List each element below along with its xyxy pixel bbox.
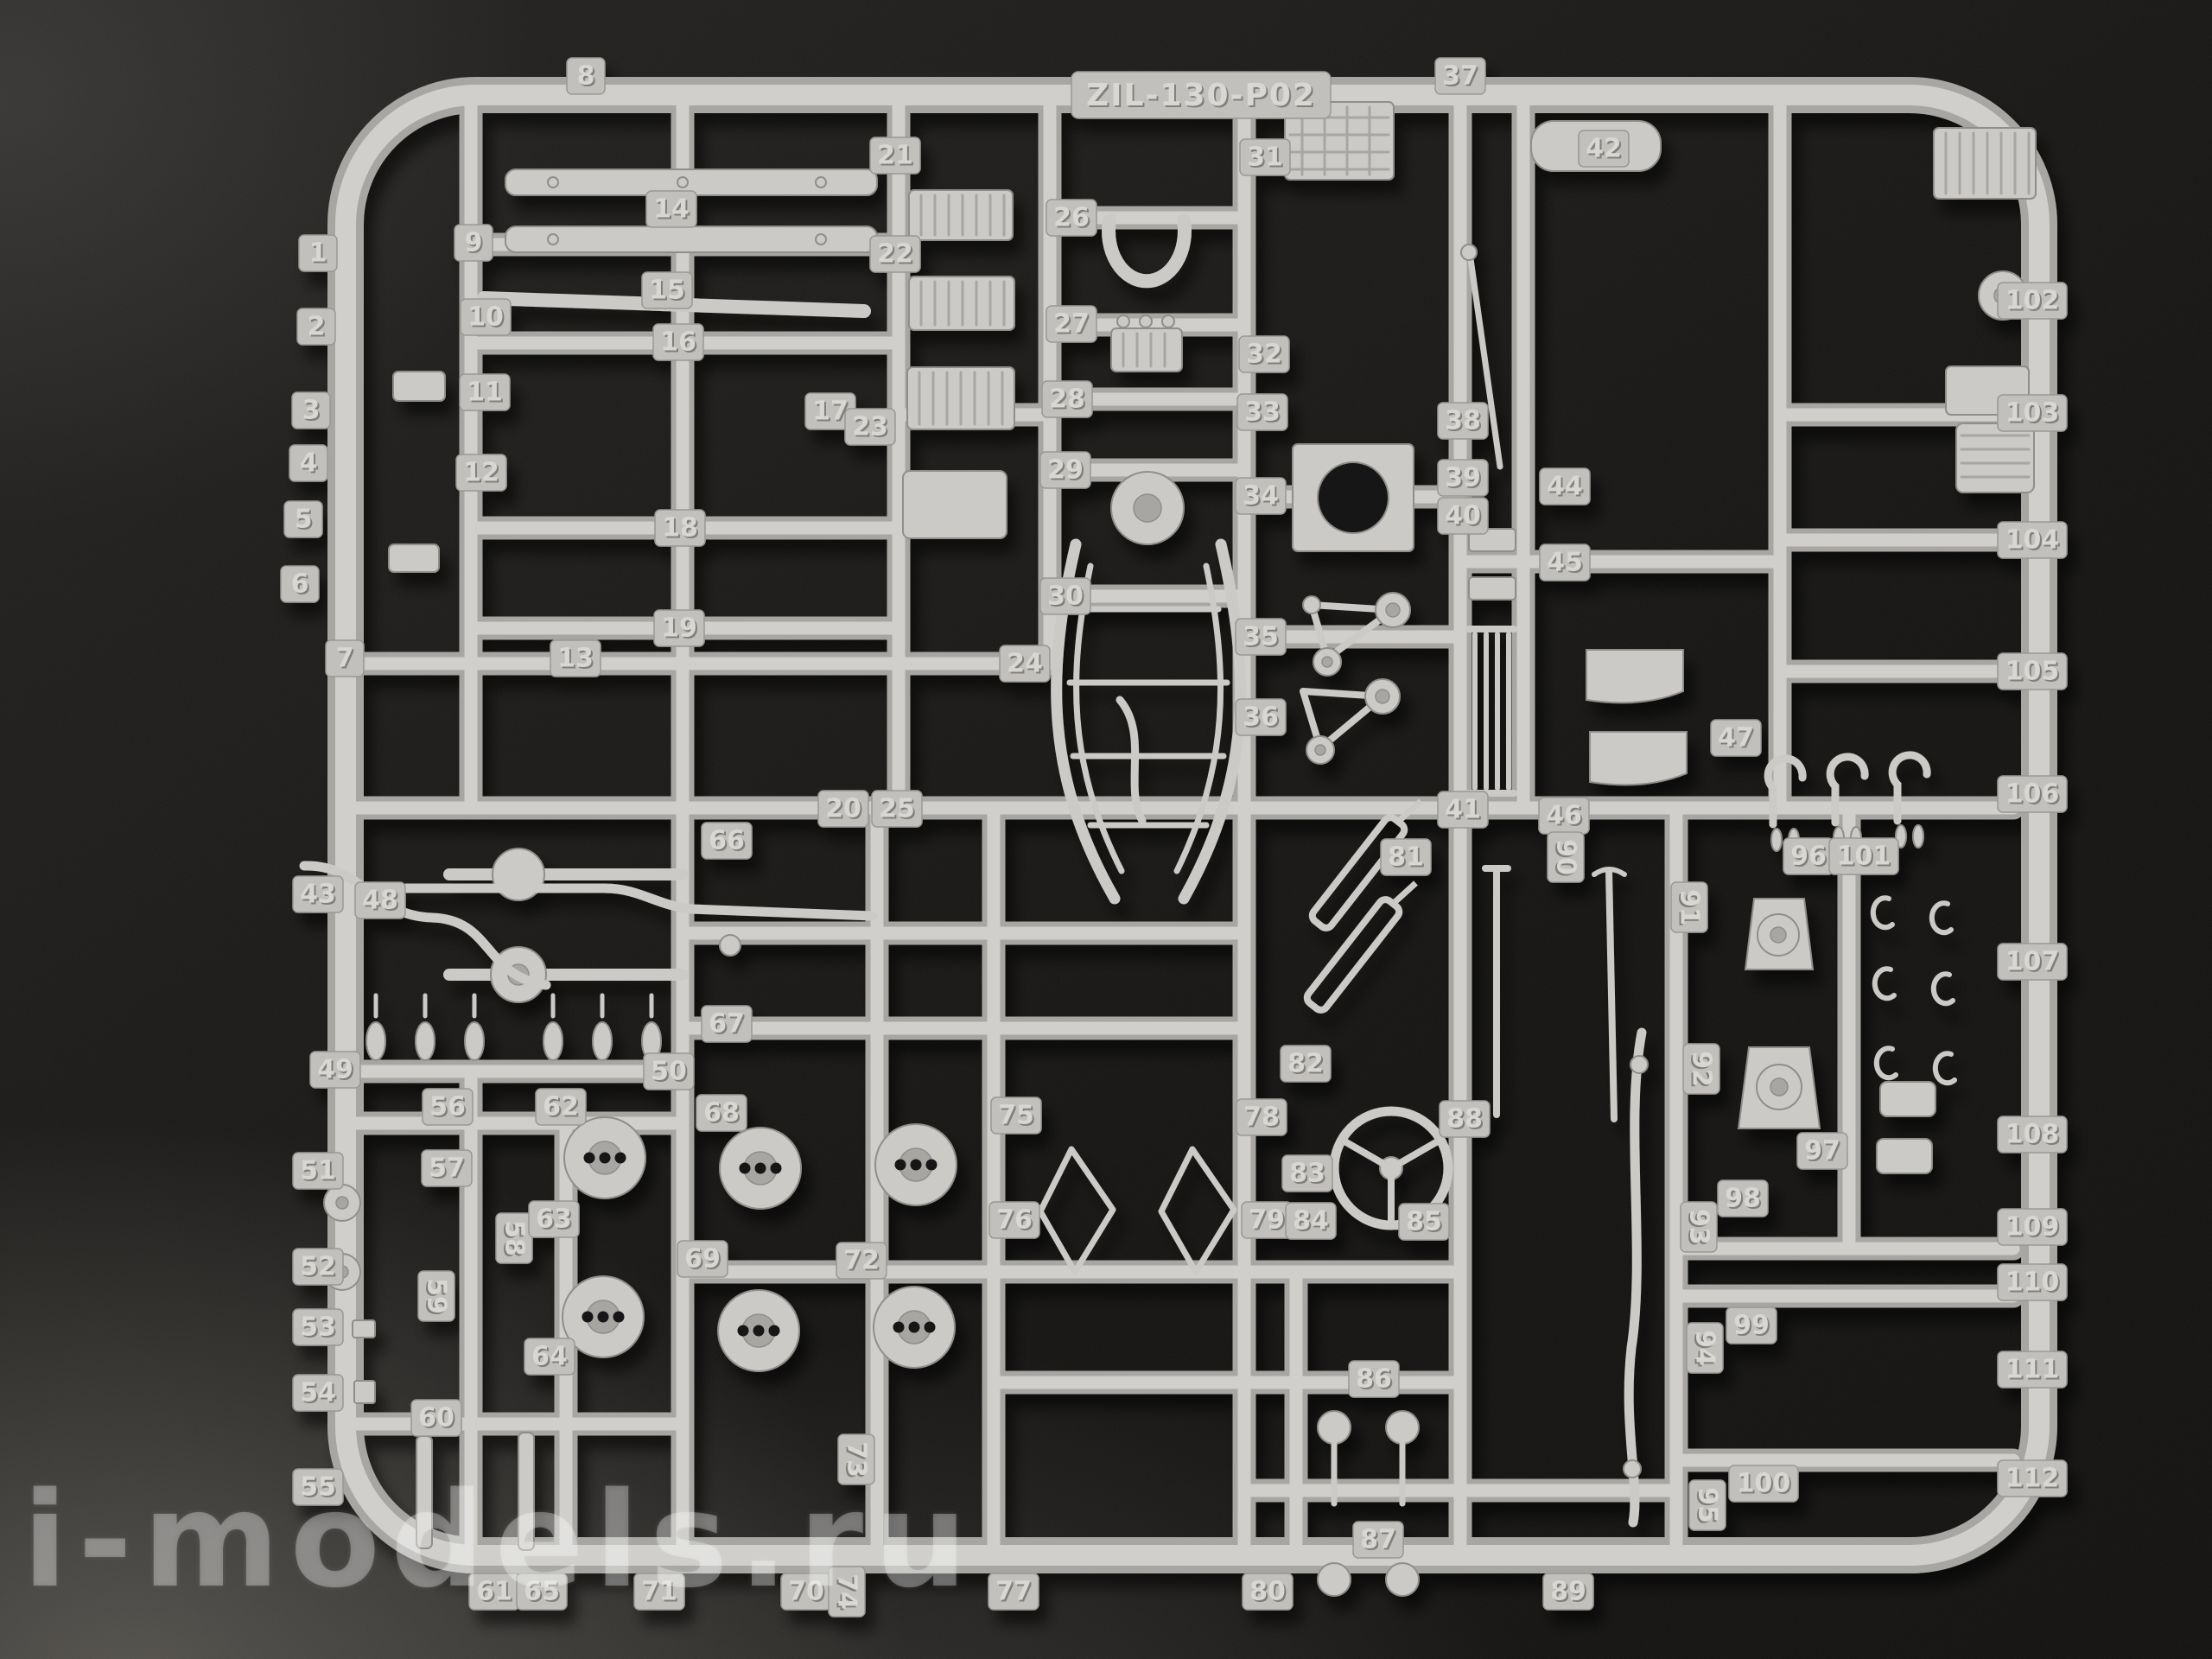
svg-text:63: 63 [536,1205,572,1235]
part-number-tab: 2121 [870,137,920,174]
svg-text:77: 77 [995,1577,1032,1607]
svg-text:98: 98 [1725,1184,1761,1214]
svg-text:58: 58 [499,1220,530,1256]
part-number-tab: 2828 [1042,381,1092,417]
part-number-tab: 4848 [355,882,405,918]
part-number-tab: 3939 [1438,460,1488,496]
part-number-tab: 22 [297,308,335,345]
part-number-tab: 7070 [781,1573,831,1610]
svg-text:17: 17 [812,397,849,427]
svg-text:14: 14 [653,194,690,225]
part-number-tab: 107107 [1998,944,2067,980]
svg-text:69: 69 [684,1244,721,1274]
svg-text:25: 25 [879,794,915,824]
part-number-tab: 8484 [1286,1203,1336,1239]
part-number-tab: 1616 [653,324,703,360]
svg-text:102: 102 [2005,286,2060,316]
part-number-tab: 5656 [423,1089,473,1125]
svg-text:49: 49 [317,1055,353,1085]
svg-text:4: 4 [300,448,318,479]
photo-of-model-kit-sprue: 1122334455667788991010111112121313141415… [0,0,2212,1659]
part-number-tab: 108108 [1998,1116,2067,1153]
part-number-tab: 6464 [524,1338,575,1375]
part-number-tab: 5252 [293,1249,343,1285]
part-number-tab: 6767 [702,1006,752,1042]
svg-text:10: 10 [467,302,504,333]
svg-text:96: 96 [1790,842,1827,872]
part-number-tab: 6161 [469,1573,519,1610]
part-number-tab: 8787 [1353,1522,1403,1558]
part-number-tab: 2525 [872,791,922,827]
svg-text:108: 108 [2005,1120,2060,1150]
part-number-tab: 2323 [845,409,895,445]
part-number-tab: 106106 [1998,776,2067,812]
part-number-tab: 6868 [696,1095,747,1131]
svg-text:94: 94 [1690,1330,1720,1366]
svg-text:1: 1 [309,238,327,269]
part-number-tab: 6565 [517,1573,567,1610]
part-number-tab: 7474 [829,1567,865,1617]
svg-text:80: 80 [1249,1577,1286,1607]
sprue-photo: 1122334455667788991010111112121313141415… [0,0,2212,1659]
svg-text:62: 62 [543,1092,579,1122]
svg-text:35: 35 [1243,622,1279,652]
part-number-tab: 104104 [1998,522,2067,558]
part-number-tab: 4141 [1438,791,1488,828]
part-number-tab: 4242 [1579,130,1629,167]
part-number-tab: 7979 [1242,1202,1292,1238]
part-number-tab: 5353 [293,1309,343,1345]
svg-text:6: 6 [291,569,309,600]
part-number-tab: 9797 [1797,1133,1847,1169]
svg-text:53: 53 [300,1313,336,1343]
part-number-tab: 3434 [1236,478,1286,514]
part-number-tab: 7676 [989,1202,1039,1238]
svg-text:30: 30 [1047,582,1084,612]
svg-text:83: 83 [1289,1159,1325,1189]
part-number-tab: 2626 [1046,200,1096,236]
svg-text:2: 2 [308,312,326,342]
svg-text:110: 110 [2005,1268,2060,1298]
part-number-tab: 5959 [418,1271,454,1321]
svg-text:70: 70 [788,1577,824,1607]
svg-text:82: 82 [1287,1049,1324,1079]
svg-text:104: 104 [2005,525,2060,556]
part-number-tab: 109109 [1998,1209,2067,1245]
part-number-tab: 1414 [646,191,696,227]
svg-text:111: 111 [2005,1355,2060,1385]
svg-text:72: 72 [843,1246,880,1276]
part-number-tab: 6969 [677,1241,728,1277]
svg-text:109: 109 [2005,1212,2060,1243]
part-number-tab: 1515 [642,272,692,308]
part-number-tab: 7272 [836,1243,887,1279]
part-number-tab: 100100 [1729,1465,1798,1502]
part-number-tab: 6262 [536,1089,586,1125]
part-number-tab: 3030 [1040,578,1090,614]
part-number-tab: 9595 [1689,1480,1726,1530]
svg-text:91: 91 [1675,889,1705,925]
part-number-tab: 5555 [293,1469,343,1505]
part-number-tab: 33 [292,392,330,429]
part-number-tab: 9696 [1783,838,1834,874]
part-number-tab: 1919 [654,610,704,646]
svg-text:73: 73 [842,1441,872,1478]
svg-text:45: 45 [1547,548,1583,578]
part-number-tab: 9494 [1687,1323,1723,1373]
part-number-tab: 4747 [1711,720,1761,756]
svg-text:88: 88 [1446,1104,1483,1135]
part-number-tab: 7575 [991,1097,1041,1134]
part-number-tab: 8585 [1399,1204,1449,1240]
svg-text:55: 55 [300,1472,336,1503]
svg-text:99: 99 [1733,1311,1770,1341]
svg-text:61: 61 [476,1577,512,1607]
svg-text:40: 40 [1445,501,1481,531]
svg-text:106: 106 [2005,779,2060,810]
part-number-tab: 8383 [1282,1155,1332,1192]
part-number-tab: 7373 [838,1434,874,1484]
part-number-tab: 4545 [1540,544,1590,581]
sprue-mold-label: ZIL-130-P02ZIL-130-P02 [1071,72,1331,118]
svg-text:3: 3 [302,396,321,426]
svg-text:101: 101 [1837,842,1891,872]
svg-text:95: 95 [1693,1487,1723,1523]
part-number-tab: 5454 [293,1375,343,1411]
svg-text:18: 18 [662,513,698,543]
part-number-tab: 8080 [1243,1573,1293,1610]
part-number-tab: 8181 [1381,839,1431,875]
part-number-tab: 3131 [1240,139,1290,175]
svg-text:64: 64 [531,1342,568,1372]
svg-text:50: 50 [651,1057,687,1087]
svg-text:68: 68 [703,1098,740,1128]
svg-text:85: 85 [1406,1207,1442,1237]
svg-text:54: 54 [300,1378,336,1408]
svg-text:15: 15 [649,276,685,306]
svg-text:36: 36 [1243,702,1279,733]
svg-text:26: 26 [1053,203,1090,233]
svg-text:66: 66 [709,826,745,856]
svg-text:56: 56 [429,1092,466,1122]
part-number-tab: 101101 [1829,838,1898,874]
part-number-tab: 55 [284,501,322,537]
svg-text:84: 84 [1293,1206,1329,1236]
svg-text:34: 34 [1243,481,1279,512]
svg-text:60: 60 [418,1403,454,1433]
part-number-tab: 9191 [1671,882,1707,932]
svg-text:42: 42 [1586,134,1622,164]
svg-text:12: 12 [463,458,499,488]
part-number-tab: 8282 [1281,1046,1331,1082]
svg-text:100: 100 [1737,1469,1791,1499]
part-number-tab: 4949 [310,1052,360,1088]
svg-text:67: 67 [709,1009,745,1039]
svg-text:75: 75 [998,1101,1034,1131]
svg-text:19: 19 [661,613,697,644]
part-number-tab: 88 [567,58,605,94]
part-number-tab: 3333 [1237,394,1287,430]
svg-text:57: 57 [429,1154,465,1184]
svg-text:43: 43 [300,880,336,910]
part-number-tab: 4343 [293,876,343,912]
svg-text:93: 93 [1684,1209,1714,1245]
svg-text:86: 86 [1356,1364,1392,1395]
part-number-tab: 110110 [1998,1264,2067,1300]
svg-text:33: 33 [1244,397,1281,428]
part-number-tab: 5151 [293,1153,343,1189]
part-number-tab: 3838 [1438,403,1488,439]
svg-text:9: 9 [465,228,483,258]
part-number-tab: 6060 [411,1400,461,1436]
part-number-tab: 4040 [1438,498,1488,534]
part-number-tab: 4646 [1539,798,1589,834]
svg-text:81: 81 [1388,842,1424,873]
part-number-tab: 2020 [818,791,868,827]
svg-text:37: 37 [1442,61,1478,92]
svg-text:107: 107 [2005,947,2060,977]
svg-text:51: 51 [300,1156,336,1186]
svg-text:24: 24 [1007,649,1043,679]
part-number-tab: 8686 [1349,1361,1399,1397]
part-number-tab: 9090 [1548,832,1584,882]
part-number-tab: 5858 [496,1213,532,1263]
svg-text:78: 78 [1243,1103,1280,1133]
part-number-tab: 44 [289,445,327,481]
svg-text:90: 90 [1551,839,1581,875]
part-number-tab: 9999 [1726,1307,1777,1344]
part-number-tab: 105105 [1998,653,2067,690]
svg-text:112: 112 [2005,1464,2060,1494]
svg-text:44: 44 [1547,472,1583,502]
svg-text:ZIL-130-P02: ZIL-130-P02 [1086,78,1316,113]
part-number-tab: 6666 [702,823,752,859]
svg-text:38: 38 [1445,406,1481,436]
part-number-tab: 1212 [456,454,506,491]
part-number-tab: 3737 [1435,58,1485,94]
svg-text:105: 105 [2005,657,2060,687]
svg-text:65: 65 [524,1577,560,1607]
svg-text:21: 21 [877,141,913,171]
part-number-tab: 2424 [1000,645,1050,682]
part-number-tab: 8989 [1543,1573,1593,1610]
part-number-tab: 66 [281,566,319,602]
svg-text:13: 13 [557,644,594,674]
svg-text:8: 8 [577,61,595,92]
svg-text:11: 11 [467,378,503,408]
part-number-tab: 3636 [1236,699,1286,735]
svg-text:27: 27 [1053,309,1090,340]
part-number-tab: 7777 [988,1573,1039,1610]
svg-text:103: 103 [2005,398,2060,429]
part-number-tab: 9292 [1683,1044,1719,1094]
svg-text:97: 97 [1804,1136,1840,1166]
svg-text:52: 52 [300,1252,336,1282]
svg-text:22: 22 [877,239,913,270]
svg-text:23: 23 [852,412,888,442]
svg-text:71: 71 [641,1577,677,1607]
svg-text:47: 47 [1718,723,1754,753]
svg-text:39: 39 [1445,463,1481,493]
part-number-tab: 7878 [1236,1099,1287,1135]
svg-text:29: 29 [1047,455,1084,486]
part-number-tab: 11 [299,235,337,271]
part-number-tab: 3232 [1239,336,1289,372]
svg-text:20: 20 [825,794,861,824]
part-number-tab: 9393 [1681,1202,1717,1252]
part-number-tab: 3535 [1236,619,1286,655]
svg-text:7: 7 [336,644,354,674]
part-number-tab: 112112 [1998,1460,2067,1497]
svg-text:46: 46 [1546,801,1582,831]
svg-text:87: 87 [1360,1525,1396,1555]
part-number-tab: 2222 [870,236,920,272]
svg-text:89: 89 [1550,1577,1586,1607]
svg-text:16: 16 [660,327,696,358]
part-number-tab: 77 [326,640,364,677]
part-number-tab: 111111 [1998,1351,2067,1388]
part-number-tab: 1818 [655,510,705,546]
svg-text:92: 92 [1687,1051,1717,1087]
svg-text:5: 5 [295,505,313,535]
svg-text:74: 74 [832,1573,862,1610]
part-number-tab: 6363 [529,1201,579,1237]
svg-text:48: 48 [362,886,398,916]
part-number-tab: 5757 [422,1150,472,1186]
part-number-tab: 103103 [1998,395,2067,431]
part-number-tab: 5050 [644,1053,694,1090]
svg-text:79: 79 [1249,1205,1285,1236]
part-number-tab: 8888 [1440,1101,1490,1137]
part-number-tab: 4444 [1540,468,1590,505]
svg-text:28: 28 [1049,385,1085,415]
part-number-tab: 2929 [1040,452,1090,488]
part-number-tab: 7171 [634,1573,684,1610]
part-number-tab: 2727 [1046,306,1096,342]
part-number-tab: 1313 [550,640,601,677]
svg-text:76: 76 [996,1205,1033,1236]
svg-text:59: 59 [422,1278,452,1314]
part-number-tab: 9898 [1718,1180,1768,1217]
svg-text:31: 31 [1247,143,1283,173]
svg-text:32: 32 [1246,340,1282,370]
part-number-tab: 99 [454,225,493,261]
part-number-tab: 1010 [461,299,511,335]
part-number-tab: 102102 [1998,283,2067,319]
part-number-tab: 1111 [460,374,510,410]
svg-text:41: 41 [1445,795,1481,825]
